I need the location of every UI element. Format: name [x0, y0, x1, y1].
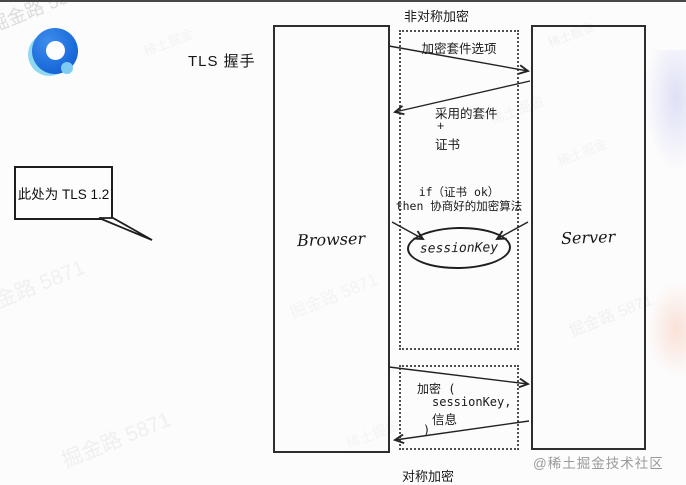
- cipher-options-label: 加密套件选项: [399, 38, 519, 57]
- encrypt-close-label: ): [423, 423, 430, 437]
- community-credit: @稀土掘金技术社区: [533, 452, 664, 472]
- plus-label: +: [437, 119, 444, 133]
- asymmetric-phase-label: 非对称加密: [404, 6, 469, 25]
- encrypt-sessionkey-label: sessionKey,: [432, 395, 511, 409]
- condition-then-label: then 协商好的加密算法: [394, 198, 524, 214]
- screenshot-canvas: 掘金路 5871 掘金路 5871 掘金路 5871 掘金路 5871 稀土掘金…: [0, 0, 686, 485]
- background-blob: [648, 282, 686, 377]
- logo-dot: [61, 62, 73, 74]
- certificate-label: 证书: [435, 134, 460, 153]
- tls-version-callout: 此处为 TLS 1.2: [14, 166, 113, 220]
- server-actor-box: Server: [531, 25, 646, 450]
- server-label: Server: [561, 227, 616, 248]
- adopted-suite-label: 采用的套件: [435, 103, 498, 122]
- window-top-edge: [0, 0, 686, 2]
- browser-logo-icon: [28, 28, 80, 78]
- tls-version-text: 此处为 TLS 1.2: [18, 183, 110, 203]
- watermark: 掘金路 5871: [57, 403, 175, 474]
- watermark: 掘金路 5871: [0, 251, 89, 322]
- browser-label: Browser: [297, 228, 366, 249]
- browser-actor-box: Browser: [273, 25, 390, 453]
- background-blob: [646, 50, 686, 170]
- session-key-label: sessionKey: [420, 240, 499, 256]
- speech-bubble-tail: [99, 218, 152, 240]
- encrypt-message-label: 信息: [432, 409, 457, 428]
- logo-hole: [46, 41, 65, 60]
- diagram-title: TLS 握手: [188, 50, 256, 71]
- symmetric-phase-label: 对称加密: [402, 466, 454, 485]
